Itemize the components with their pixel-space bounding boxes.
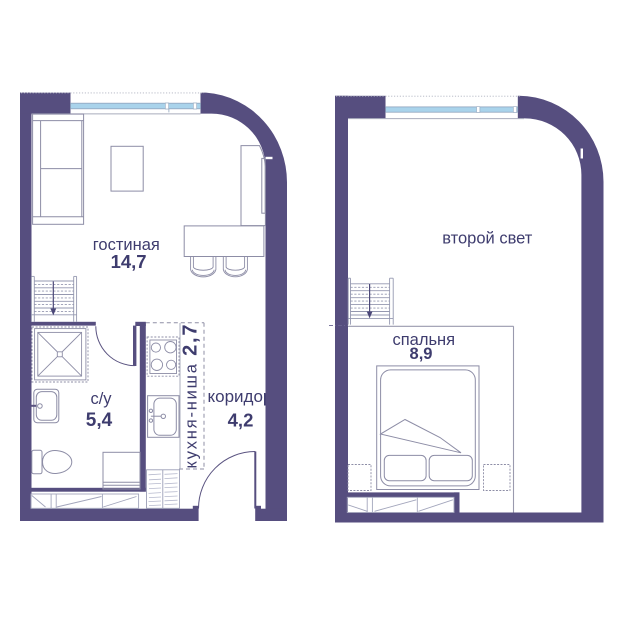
svg-text:коридор: коридор (208, 387, 273, 406)
svg-text:кухня-ниша 2,7: кухня-ниша 2,7 (180, 323, 202, 469)
svg-text:4,2: 4,2 (228, 409, 254, 430)
svg-text:5,4: 5,4 (86, 410, 113, 431)
svg-text:второй свет: второй свет (442, 230, 533, 248)
svg-text:14,7: 14,7 (111, 251, 147, 272)
svg-text:8,9: 8,9 (410, 345, 433, 363)
svg-text:с/у: с/у (90, 390, 112, 408)
